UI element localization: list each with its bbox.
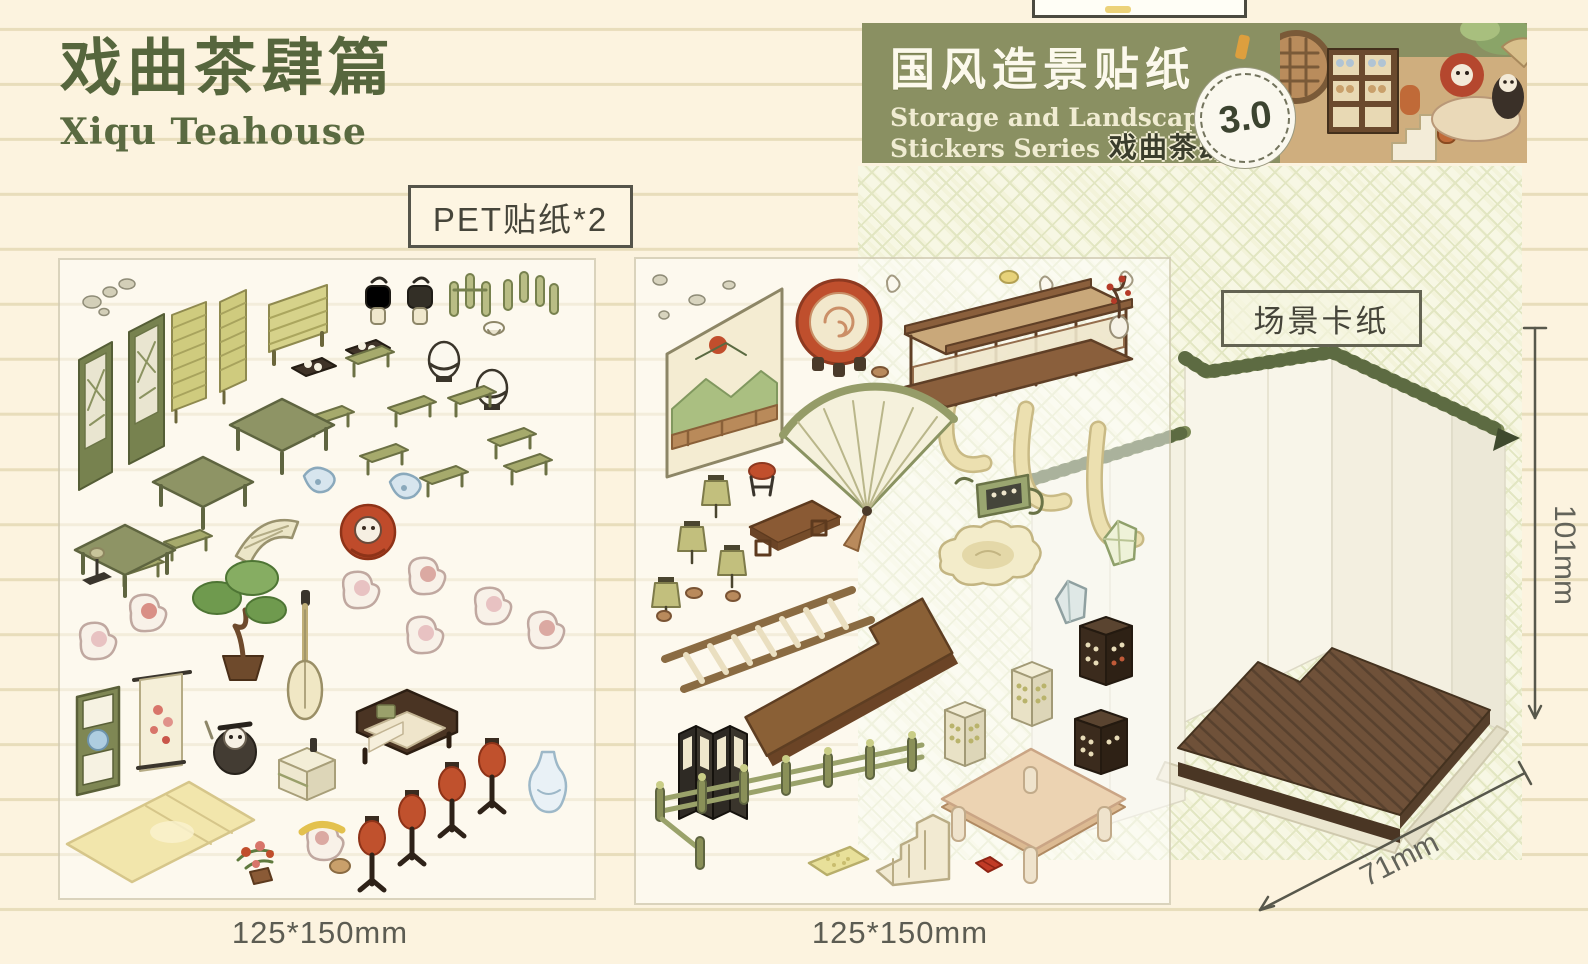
- scene-card-label: 场景卡纸: [1221, 290, 1422, 347]
- teahouse-illustration: [1280, 23, 1527, 163]
- pet-sticker-count-label: PET贴纸*2: [408, 185, 633, 248]
- stone-bridge-piece: [236, 520, 298, 564]
- yellow-hat-character: [302, 824, 350, 873]
- pebbles: [653, 275, 735, 319]
- tatami-mat: [67, 782, 254, 882]
- brown-low-table: [750, 501, 840, 555]
- potted-flowers: [238, 841, 274, 884]
- scene-card-label-text: 场景卡纸: [1254, 296, 1390, 341]
- version-badge: 3.0: [1200, 73, 1290, 163]
- lattice-screen: [79, 314, 164, 490]
- green-lattice-door: [77, 687, 119, 795]
- red-stool: [749, 463, 775, 495]
- sheet1-size-caption: 125*150mm: [170, 915, 470, 951]
- version-badge-text: 3.0: [1216, 93, 1274, 143]
- teahouse-signboard: [956, 475, 1042, 517]
- cropped-label-content: [1105, 6, 1131, 13]
- hook-stand: [450, 272, 558, 316]
- opera-figure-red: [1440, 53, 1484, 97]
- cloud-rug: [940, 521, 1041, 585]
- pet-label-text: PET贴纸*2: [433, 193, 608, 241]
- page-title: 戏曲茶肆篇: [60, 36, 395, 101]
- opera-cat-characters: [80, 558, 564, 659]
- banner-subtitle-line1: Storage and Landscape: [890, 103, 1217, 132]
- pipa-lute: [288, 590, 322, 719]
- sticker-sheet-1: [58, 258, 596, 900]
- small-stairs: [877, 815, 949, 885]
- page-subtitle: Xiqu Teahouse: [60, 111, 395, 153]
- landscape-painting: [667, 289, 782, 477]
- green-square-table: [75, 399, 334, 596]
- jar-shelf: [1328, 49, 1398, 133]
- sticker-sheet-2-art: [636, 259, 1169, 903]
- dark-bottle-cabinets: [1075, 617, 1132, 774]
- title-block: 戏曲茶肆篇 Xiqu Teahouse: [60, 36, 395, 153]
- shop-counter: [279, 738, 335, 800]
- height-dimension-label: 101mm: [1547, 505, 1581, 605]
- bamboo-fence: [269, 285, 327, 364]
- banner-illustration: [1280, 23, 1527, 163]
- wooden-sofa: [357, 690, 457, 762]
- sticker-sheet-1-art: [60, 260, 594, 898]
- blue-porcelain-bundle: [304, 468, 421, 498]
- sticker-sheet-2: [634, 257, 1171, 905]
- small-teacup: [484, 322, 504, 335]
- rat-storyteller: [206, 722, 256, 774]
- sheet2-size-caption: 125*150mm: [750, 915, 1050, 951]
- crystal-gems: [1056, 521, 1136, 623]
- bonsai-pine: [193, 561, 286, 680]
- hanging-lantern: [366, 278, 432, 324]
- yellow-mat: [809, 847, 868, 875]
- red-opera-character: [341, 505, 395, 559]
- pebbles: [83, 279, 135, 316]
- bamboo-blind: [172, 290, 246, 422]
- flower-scroll: [134, 672, 190, 771]
- blue-white-vase: [529, 752, 566, 812]
- red-opera-drum: [797, 280, 881, 377]
- cropped-label-box: [1032, 0, 1247, 18]
- red-floor-lanterns: [359, 738, 505, 890]
- series-banner: 国风造景贴纸 Storage and Landscape Stickers Se…: [862, 23, 1527, 163]
- red-cushion: [976, 857, 1002, 872]
- banner-subtitle-line2: Stickers Series: [890, 134, 1100, 163]
- depth-dimension-line: [1245, 745, 1545, 925]
